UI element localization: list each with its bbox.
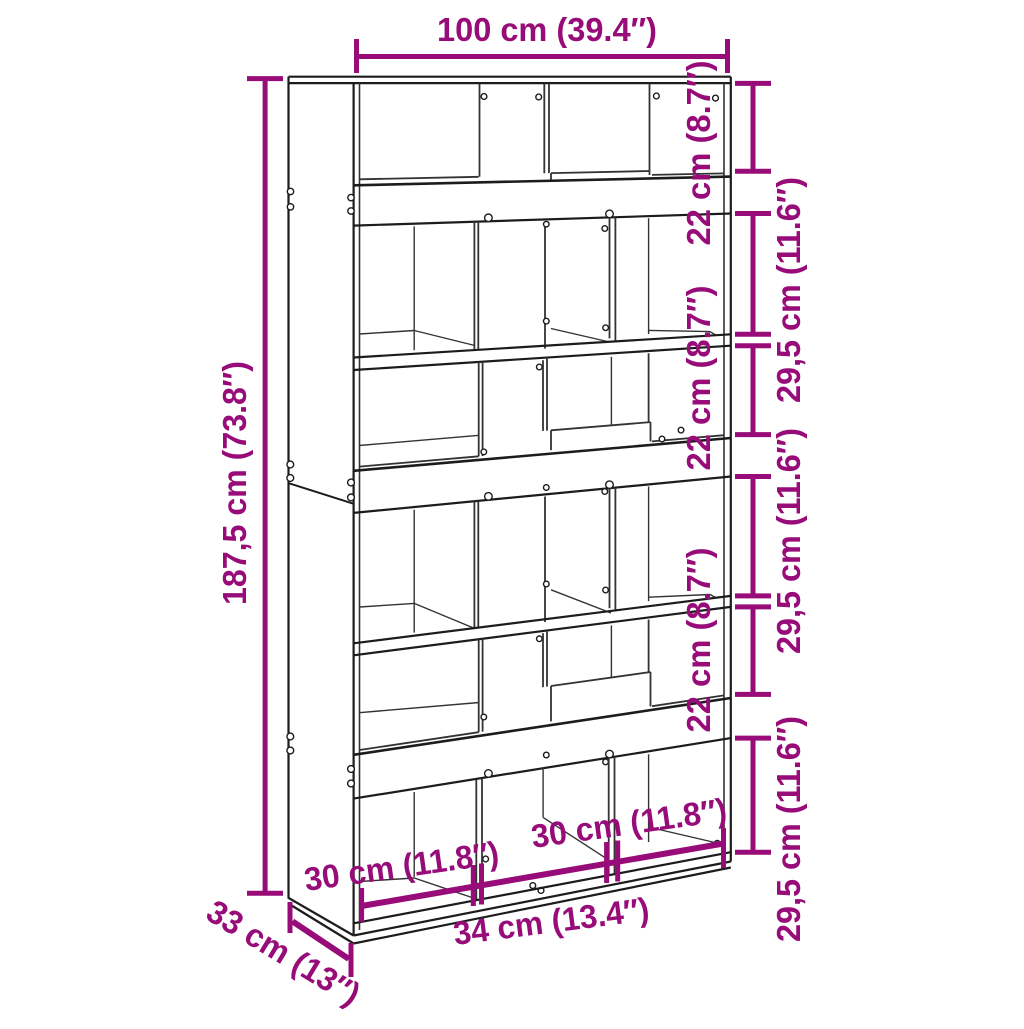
svg-text:100 cm (39.4″): 100 cm (39.4″) xyxy=(437,11,657,48)
svg-text:22 cm (8.7″): 22 cm (8.7″) xyxy=(680,548,717,733)
svg-text:29,5 cm (11.6″): 29,5 cm (11.6″) xyxy=(770,428,807,654)
svg-text:187,5 cm (73.8″): 187,5 cm (73.8″) xyxy=(216,361,253,605)
svg-text:29,5 cm (11.6″): 29,5 cm (11.6″) xyxy=(770,177,807,403)
svg-text:29,5 cm (11.6″): 29,5 cm (11.6″) xyxy=(770,716,807,942)
svg-text:22 cm (8.7″): 22 cm (8.7″) xyxy=(680,286,717,471)
svg-text:22 cm (8.7″): 22 cm (8.7″) xyxy=(680,61,717,246)
